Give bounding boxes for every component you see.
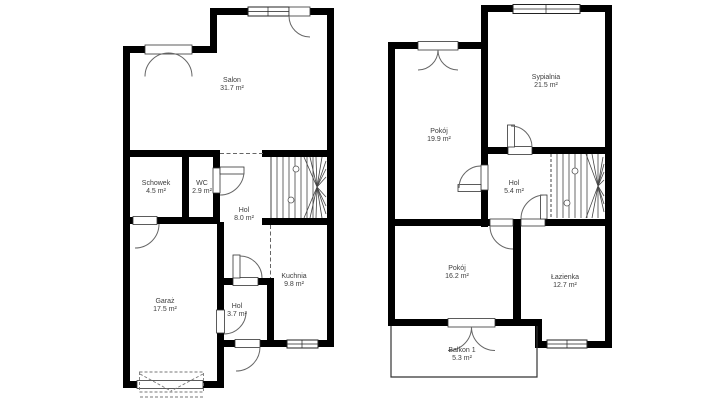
door-salon-terrace bbox=[145, 45, 192, 77]
door-pokoj2 bbox=[490, 219, 513, 249]
upper-floor-walls bbox=[388, 5, 612, 348]
entrance-door bbox=[235, 340, 260, 372]
upper-floor-plan bbox=[388, 5, 612, 378]
door-lazienka bbox=[521, 195, 547, 226]
floorplan-canvas: Salon31.7 m² Schowek4.5 m² WC2.9 m² Hol8… bbox=[0, 0, 720, 405]
window-lazienka bbox=[547, 340, 587, 348]
staircase-upper bbox=[551, 154, 604, 219]
door-pokoj-hall bbox=[458, 165, 488, 192]
stair-winder-fan bbox=[586, 154, 604, 218]
balcony-outline bbox=[391, 326, 537, 377]
door-pokoj-top bbox=[418, 42, 458, 71]
door-salon-top bbox=[289, 7, 310, 37]
floorplan-drawing bbox=[0, 0, 720, 405]
door-sypialnia bbox=[508, 125, 533, 155]
staircase-ground bbox=[271, 157, 326, 218]
window-sypialnia bbox=[513, 5, 580, 14]
door-schowek-garage bbox=[133, 217, 159, 249]
door-balkon bbox=[448, 319, 495, 351]
door-vestibule-hall bbox=[233, 255, 262, 286]
ground-floor-walls bbox=[123, 8, 334, 388]
door-wc bbox=[213, 167, 244, 195]
window-salon bbox=[248, 7, 289, 16]
window-kitchen bbox=[287, 340, 318, 348]
door-garage-hall bbox=[217, 310, 247, 334]
ground-floor-plan bbox=[123, 7, 334, 397]
garage-door bbox=[137, 372, 204, 397]
